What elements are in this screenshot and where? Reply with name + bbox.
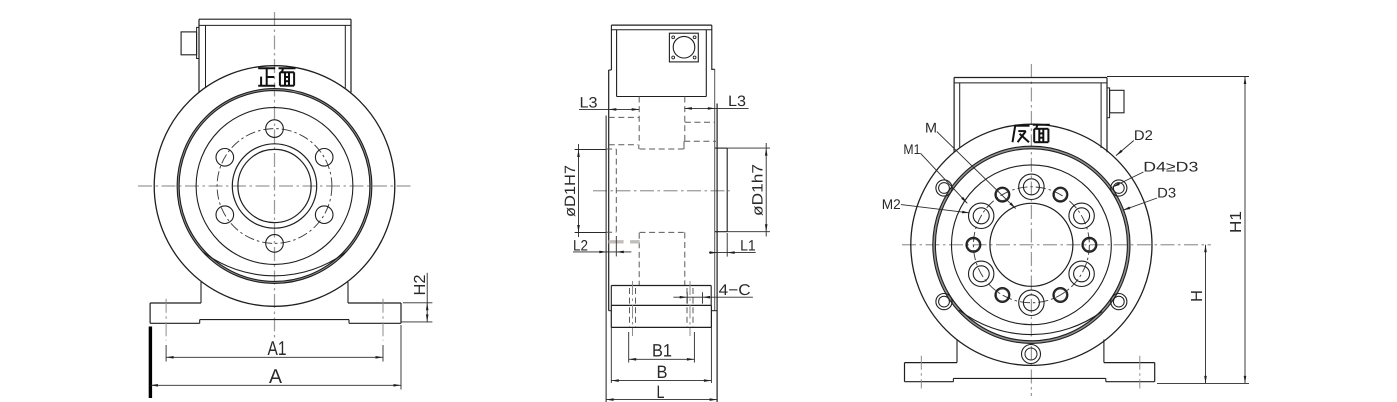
svg-text:L3: L3	[728, 93, 746, 110]
svg-text:øD1h7: øD1h7	[750, 164, 767, 216]
svg-text:A1: A1	[268, 338, 287, 360]
svg-text:M1: M1	[903, 141, 920, 157]
svg-text:L3: L3	[580, 95, 598, 112]
svg-text:4−C: 4−C	[719, 282, 751, 299]
svg-text:B: B	[657, 362, 668, 382]
svg-text:A: A	[269, 366, 283, 388]
svg-text:H2: H2	[412, 274, 429, 295]
svg-text:L1: L1	[740, 238, 756, 255]
svg-text:øD1H7: øD1H7	[562, 165, 579, 217]
svg-text:H1: H1	[1228, 211, 1245, 233]
svg-text:L: L	[657, 382, 665, 402]
svg-text:H: H	[1189, 290, 1206, 302]
svg-text:D4≥D3: D4≥D3	[1143, 159, 1198, 175]
svg-text:D2: D2	[1134, 127, 1153, 143]
svg-text:B1: B1	[652, 341, 672, 361]
svg-text:M2: M2	[882, 196, 901, 212]
svg-text:M: M	[925, 120, 937, 136]
svg-text:D3: D3	[1157, 185, 1176, 201]
